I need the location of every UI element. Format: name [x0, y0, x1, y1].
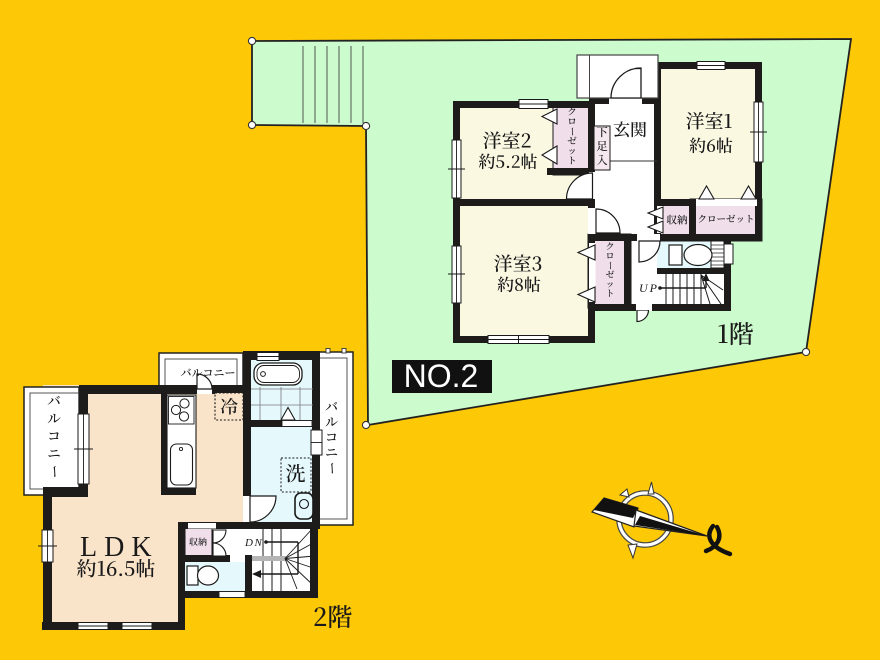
svg-text:DN: DN [244, 537, 263, 549]
svg-text:UP: UP [639, 281, 659, 295]
svg-text:LDK: LDK [80, 532, 159, 563]
svg-text:NO.2: NO.2 [404, 358, 479, 394]
